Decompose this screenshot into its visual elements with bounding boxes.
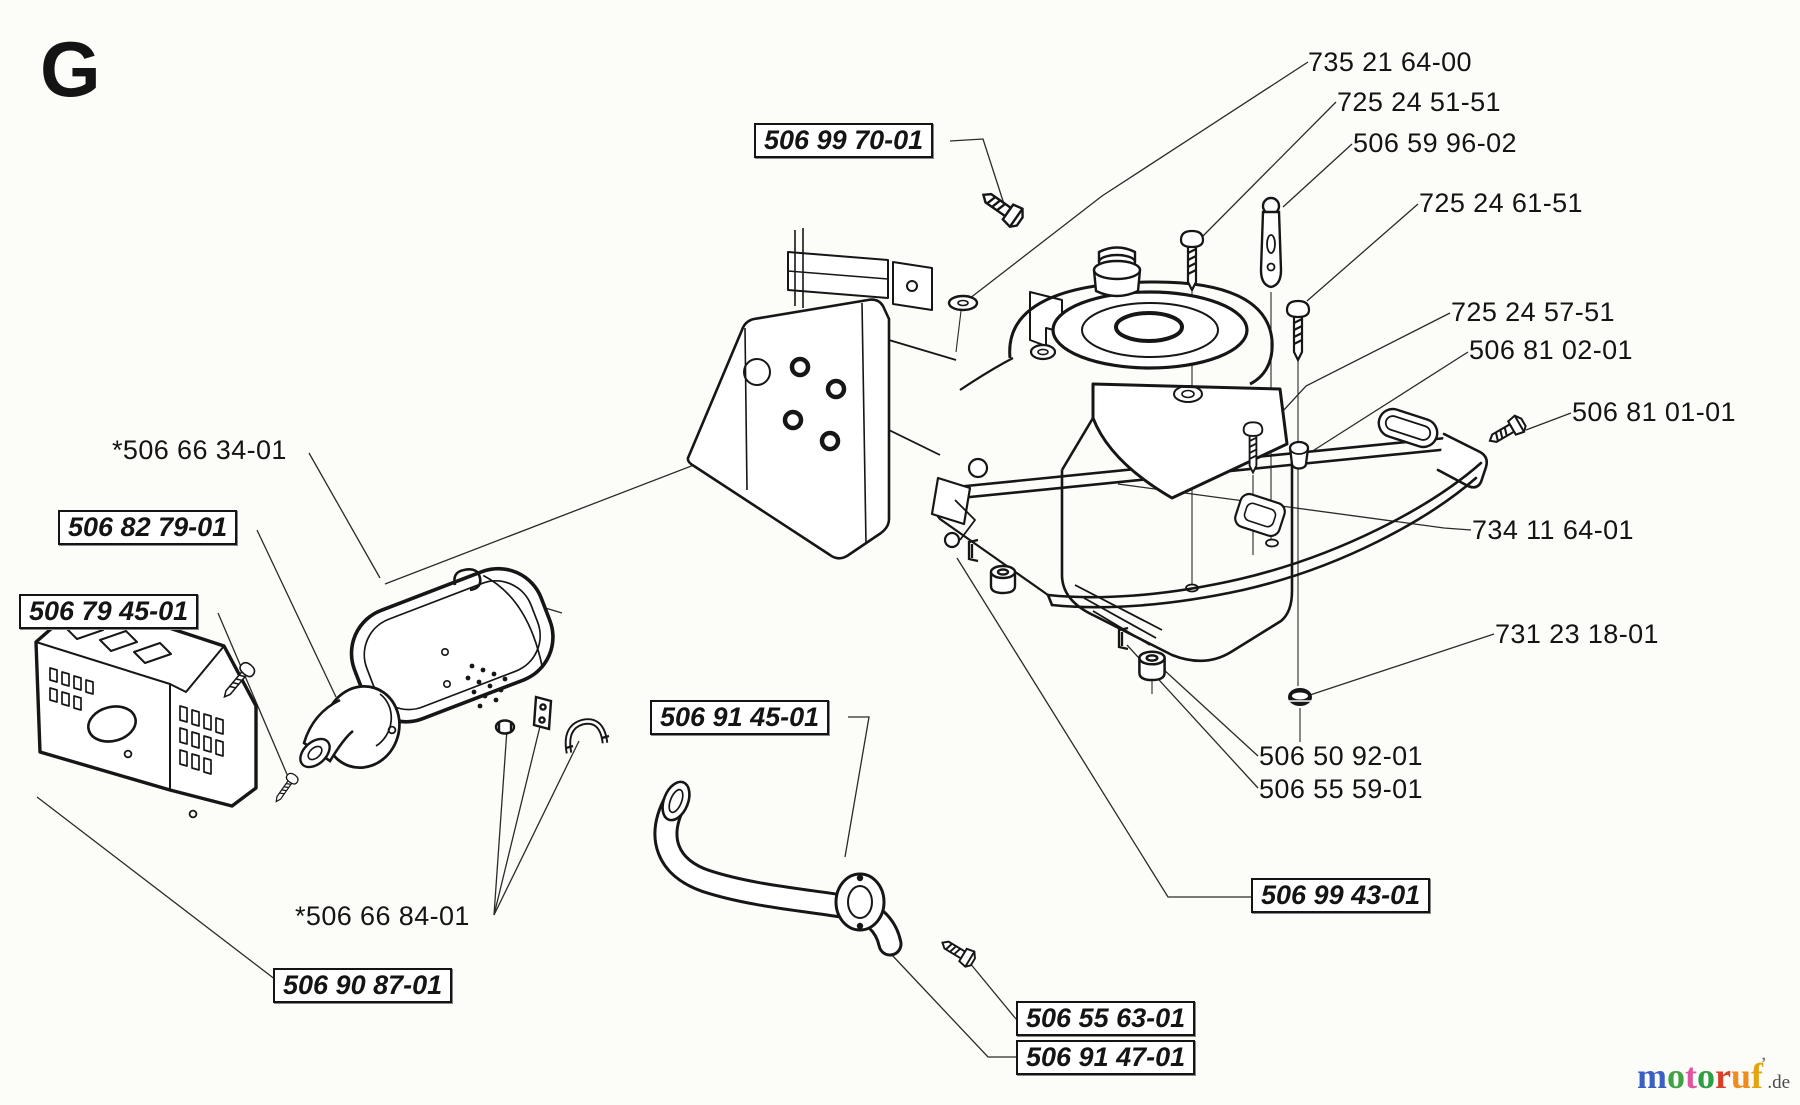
bolt-506-81-01-01 <box>1485 414 1527 449</box>
logo-letter: r <box>1715 1058 1731 1094</box>
part-label-735-21-64-00: 735 21 64-00 <box>1308 48 1472 76</box>
part-label-506-50-92-01: 506 50 92-01 <box>1259 742 1423 770</box>
logo-letter: m <box>1637 1058 1667 1094</box>
logo-letter: t <box>1685 1058 1697 1094</box>
air-filter-cover <box>36 600 256 817</box>
motoruf-logo[interactable]: m o t o r u f ’ .de <box>1637 1056 1790 1094</box>
section-letter: G <box>40 30 101 108</box>
part-box-506-82-79-01[interactable]: 506 82 79-01 <box>58 510 237 545</box>
bolt-506-55-63-01 <box>938 935 978 969</box>
nut-731-23-18-01 <box>1288 688 1312 706</box>
part-box-506-55-63-01[interactable]: 506 55 63-01 <box>1016 1001 1195 1036</box>
capnut-506-81-02-01 <box>1290 442 1308 469</box>
mounting-plate <box>688 228 1062 558</box>
part-label-731-23-18-01: 731 23 18-01 <box>1495 620 1659 648</box>
part-label-506-59-96-02: 506 59 96-02 <box>1353 129 1517 157</box>
part-box-506-90-87-01[interactable]: 506 90 87-01 <box>273 968 452 1003</box>
part-box-506-79-45-01[interactable]: 506 79 45-01 <box>19 594 198 629</box>
bushing-1 <box>991 566 1015 593</box>
logo-letter: u <box>1731 1058 1751 1094</box>
part-label-734-11-64-01: 734 11 64-01 <box>1472 516 1634 544</box>
part-label-506-81-02-01: 506 81 02-01 <box>1469 336 1633 364</box>
bushing-506-50-92-01 <box>1139 652 1164 680</box>
logo-letter: o <box>1667 1058 1685 1094</box>
clamp-parts <box>496 697 609 753</box>
screw-725-24-51-51 <box>1181 231 1203 290</box>
part-label-506-66-34-01: *506 66 34-01 <box>112 436 287 464</box>
link-506-59-96-02 <box>1261 198 1281 287</box>
part-label-725-24-61-51: 725 24 61-51 <box>1419 189 1583 217</box>
part-box-506-99-70-01[interactable]: 506 99 70-01 <box>754 123 933 158</box>
logo-domain-suffix: .de <box>1767 1072 1790 1094</box>
exhaust-pipe <box>657 778 890 944</box>
part-box-506-91-45-01[interactable]: 506 91 45-01 <box>650 700 829 735</box>
part-label-506-81-01-01: 506 81 01-01 <box>1572 398 1736 426</box>
part-box-506-99-43-01[interactable]: 506 99 43-01 <box>1251 878 1430 913</box>
engine-assembly-drawing <box>0 0 1800 1105</box>
part-box-506-91-47-01[interactable]: 506 91 47-01 <box>1016 1040 1195 1075</box>
part-label-725-24-51-51: 725 24 51-51 <box>1337 88 1501 116</box>
logo-tick: ’ <box>1761 1056 1766 1072</box>
parts-diagram-page: G 735 21 64-00 725 24 51-51 506 59 96-02… <box>0 0 1800 1105</box>
part-label-725-24-57-51: 725 24 57-51 <box>1451 298 1615 326</box>
part-label-506-55-59-01: 506 55 59-01 <box>1259 775 1423 803</box>
engine <box>889 248 1292 661</box>
bolt-506-99-70-01 <box>977 186 1026 230</box>
washer-735-21-64-00 <box>949 296 977 310</box>
part-label-506-66-84-01: *506 66 84-01 <box>295 902 470 930</box>
screw-506-79-45-01 <box>271 771 300 805</box>
screw-725-24-61-51 <box>1287 301 1309 360</box>
logo-letter: o <box>1697 1058 1715 1094</box>
